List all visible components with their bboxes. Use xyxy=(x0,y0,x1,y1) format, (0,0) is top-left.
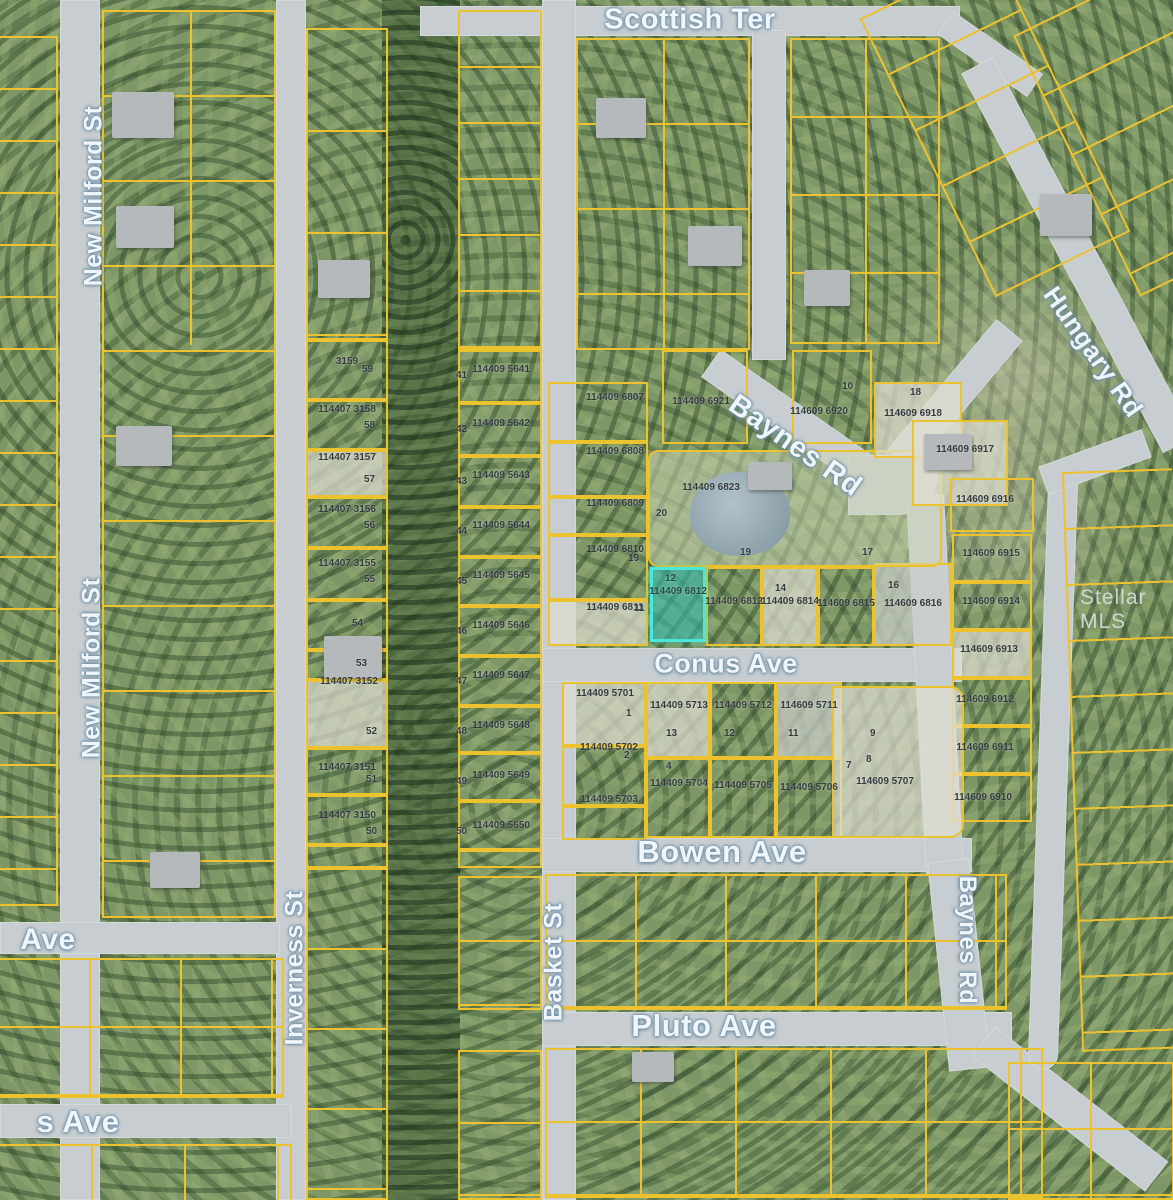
parcel-label: 114409 564242 xyxy=(472,418,530,430)
parcel-label: 114609 6912 xyxy=(956,694,1014,706)
parcel-id: 114609 6816 xyxy=(884,598,942,609)
lot-number: 11 xyxy=(788,728,799,740)
parcel-id: 114409 5701 xyxy=(576,688,634,699)
lot-number: 4 xyxy=(666,761,672,773)
parcel-label: 114409 5705 xyxy=(714,780,772,792)
parcel-id: 114609 6920 xyxy=(790,406,848,417)
lot-number: 45 xyxy=(456,576,467,588)
parcel-id: 114409 5705 xyxy=(714,780,772,791)
parcel-id: 114609 5711 xyxy=(780,700,837,711)
parcel xyxy=(458,507,542,557)
lot-number: 48 xyxy=(456,726,467,738)
lot-number: 1 xyxy=(626,708,632,720)
parcel-label: 114409 6809 xyxy=(586,498,644,510)
parcel-label: 114409 6807 xyxy=(586,392,644,404)
lot-number: 12 xyxy=(724,728,735,740)
parcel xyxy=(458,557,542,606)
parcel-label: 114409 564848 xyxy=(472,720,530,732)
building xyxy=(318,260,370,298)
building xyxy=(116,206,174,248)
parcel-label: 114409 564545 xyxy=(472,570,530,582)
lot-number: 11 xyxy=(634,603,645,615)
parcel-label: 114409 564444 xyxy=(472,520,530,532)
stellar-mls-watermark: Stellar MLS xyxy=(1080,586,1173,634)
parcel-grid xyxy=(545,1048,1043,1198)
parcel-label: 114409 565050 xyxy=(472,820,530,832)
parcel-id: 114409 6921 xyxy=(672,396,730,407)
parcel-id: 114609 6910 xyxy=(954,792,1012,803)
parcel-grid xyxy=(1008,1062,1173,1200)
parcel-label: 315959 xyxy=(318,356,376,368)
lot-number: 58 xyxy=(364,420,375,432)
road-baynes-north xyxy=(752,30,786,360)
parcel xyxy=(306,845,388,868)
parcel-id: 114409 6809 xyxy=(586,498,644,509)
parcel-id: 114407 3151 xyxy=(318,762,376,773)
parcel-id: 114609 6912 xyxy=(956,694,1014,705)
parcel-label: 114609 6910 xyxy=(954,792,1012,804)
parcel-grid xyxy=(545,874,1007,1010)
parcel-label: 114409 57011 xyxy=(576,688,634,700)
street-label-basket-st: Basket St xyxy=(540,903,569,1021)
parcel-id: 114407 3156 xyxy=(318,504,376,515)
parcel-label: 114409 6808 xyxy=(586,446,644,458)
parcel-label: 114609 571111 xyxy=(780,700,838,712)
street-label-new-milford-st-lower: New Milford St xyxy=(78,578,107,759)
lot-number: 56 xyxy=(364,520,375,532)
lot-number: 47 xyxy=(456,676,467,688)
lot-number: 49 xyxy=(456,776,467,788)
parcel-grid xyxy=(0,36,58,906)
parcel xyxy=(458,403,542,456)
aerial-parcel-map: 315959 114407 315858 114407 315757 11440… xyxy=(0,0,1173,1200)
parcel-label: 114609 691818 xyxy=(884,408,942,420)
parcel-id: 114609 6914 xyxy=(962,596,1020,607)
parcel-label: 114407 315757 xyxy=(318,452,376,464)
parcel-id: 114409 5644 xyxy=(472,520,530,531)
lot-number: 19 xyxy=(740,547,751,558)
parcel-label: 114609 6914 xyxy=(962,596,1020,608)
parcel-id: 114609 6911 xyxy=(956,742,1013,753)
building xyxy=(324,636,382,678)
parcel-id: 114409 5647 xyxy=(472,670,530,681)
parcel-id: 114407 3157 xyxy=(318,452,376,463)
parcel-id: 114409 5706 xyxy=(780,782,838,793)
parcel-id: 114409 5704 xyxy=(650,778,708,789)
parcel xyxy=(710,682,776,758)
parcel-label: 114409 5703 xyxy=(580,794,638,806)
parcel-label: 114409 564747 xyxy=(472,670,530,682)
parcel-label: 114409 682320 xyxy=(682,482,740,494)
parcel-grid xyxy=(1062,468,1173,1051)
lot-number: 57 xyxy=(364,474,375,486)
highlighted-parcel-label: 114409 681212 xyxy=(649,586,707,598)
lot-number: 43 xyxy=(456,476,467,488)
building xyxy=(748,462,792,490)
building xyxy=(688,226,742,266)
parcel-label: 114409 564343 xyxy=(472,470,530,482)
parcel-label: 114407 315050 xyxy=(318,810,376,822)
parcel-grid xyxy=(0,1144,292,1200)
building xyxy=(150,852,200,888)
highlighted-parcel xyxy=(650,567,706,642)
parcel-grid xyxy=(0,958,284,1098)
lot-number: 8 xyxy=(866,754,872,765)
lot-number: 44 xyxy=(456,526,467,538)
street-label-bowen-ave: Bowen Ave xyxy=(637,834,806,870)
parcel-label: 114409 564949 xyxy=(472,770,530,782)
street-label-pluto-ave: Pluto Ave xyxy=(631,1008,776,1044)
parcel-id: 114609 6916 xyxy=(956,494,1014,505)
parcel-id: 114609 6913 xyxy=(960,644,1018,655)
street-label-baynes-rd-vertical: Baynes Rd xyxy=(953,876,981,1005)
parcel-grid xyxy=(458,876,542,1010)
parcel-line xyxy=(190,10,192,345)
parcel-id: 114409 5648 xyxy=(472,720,530,731)
parcel-label: 114609 6915 xyxy=(962,548,1020,560)
parcel-id: 3159 xyxy=(336,356,358,367)
building xyxy=(116,426,172,466)
building xyxy=(596,98,646,138)
parcel-id: 114409 5641 xyxy=(472,364,530,375)
parcel-id: 114609 6915 xyxy=(962,548,1020,559)
parcel-id: 114407 3152 xyxy=(320,676,378,687)
parcel-id: 114609 6918 xyxy=(884,408,942,419)
lot-number: 10 xyxy=(842,381,853,392)
parcel-label: 114409 571313 xyxy=(650,700,708,712)
building xyxy=(112,92,174,138)
parcel-label: 114409 6921 xyxy=(672,396,730,408)
lot-number: 18 xyxy=(910,387,921,399)
parcel-id: 114409 6808 xyxy=(586,446,644,457)
parcel-id: 114409 5642 xyxy=(472,418,530,429)
parcel-grid xyxy=(458,1050,542,1200)
lot-number: 16 xyxy=(888,580,899,592)
lot-number: 50 xyxy=(366,826,377,838)
parcel xyxy=(458,350,542,403)
parcel-label: 114409 571212 xyxy=(714,700,772,712)
parcel-id: 114409 5650 xyxy=(472,820,530,831)
parcel-id: 114409 6813 xyxy=(705,596,763,607)
tree-greenbelt xyxy=(382,0,460,1200)
parcel-id: 114409 6814 xyxy=(761,596,819,607)
lot-number: 55 xyxy=(364,574,375,586)
parcel-label: 114609 6815 xyxy=(817,598,875,610)
parcel-label: 114409 564646 xyxy=(472,620,530,632)
lot-number: 13 xyxy=(666,728,677,740)
parcel-label: 114609 6920 xyxy=(790,406,848,418)
parcel-id: 114409 5703 xyxy=(580,794,638,805)
parcel-label: 114409 57022 xyxy=(580,742,638,754)
building xyxy=(632,1052,674,1082)
parcel-id: 114609 6815 xyxy=(817,598,875,609)
parcel-label: 114409 681019 xyxy=(586,544,644,556)
parcel-grid xyxy=(576,38,750,350)
parcel-label: 114409 681111 xyxy=(586,602,644,614)
parcel-label: 114409 681414 xyxy=(761,596,819,608)
street-label-ave-partial: Ave xyxy=(20,923,75,957)
street-label-conus-ave: Conus Ave xyxy=(654,649,798,680)
parcel-id: 114409 5645 xyxy=(472,570,530,581)
parcel-label: 114609 6917 xyxy=(936,444,994,456)
parcel-label: 114409 57044 xyxy=(650,778,708,790)
parcel-id: 114409 6807 xyxy=(586,392,644,403)
lot-number: 20 xyxy=(656,508,667,520)
parcel-id: 114609 5707 xyxy=(856,776,914,787)
parcel-id: 114409 5713 xyxy=(650,700,708,711)
parcel-label: 114609 6916 xyxy=(956,494,1014,506)
parcel-label: 114407 315656 xyxy=(318,504,376,516)
parcel-id: 114409 5649 xyxy=(472,770,530,781)
street-label-scottish-ter: Scottish Ter xyxy=(604,4,775,37)
lot-number: 52 xyxy=(366,726,377,738)
lot-number: 59 xyxy=(362,364,373,376)
lot-number: 53 xyxy=(356,658,367,670)
lot-number: 14 xyxy=(775,583,786,595)
parcel-id: 114409 6823 xyxy=(682,482,740,493)
parcel-label: 114407 315858 xyxy=(318,404,376,416)
parcel-label: 114409 5706 xyxy=(780,782,838,794)
lot-number: 19 xyxy=(628,553,639,565)
parcel-label: 114609 5707 xyxy=(856,776,914,788)
parcel-label: 114609 6913 xyxy=(960,644,1018,656)
parcel-id: 114409 5646 xyxy=(472,620,530,631)
parcel-label: 114407 315555 xyxy=(318,558,376,570)
parcel-label: 114609 6911 xyxy=(956,742,1014,754)
lot-number: 42 xyxy=(456,424,467,436)
parcel xyxy=(306,548,388,600)
parcel xyxy=(306,680,388,748)
parcel-grid xyxy=(306,868,388,1200)
lot-number: 51 xyxy=(366,774,377,786)
lot-number: 7 xyxy=(846,760,852,771)
parcel-id: 114407 3150 xyxy=(318,810,376,821)
parcel-id: 114409 5712 xyxy=(714,700,772,711)
road-pluto-ave xyxy=(542,1012,1012,1046)
parcel-label: 114409 6813 xyxy=(705,596,763,608)
parcel xyxy=(646,758,710,838)
lot-number: 41 xyxy=(456,370,467,382)
building xyxy=(804,270,850,306)
street-label-new-milford-st-upper: New Milford St xyxy=(80,106,109,287)
parcel xyxy=(458,456,542,507)
lot-number: 2 xyxy=(624,750,630,762)
parcel xyxy=(458,850,542,868)
parcel-id: 114409 6812 xyxy=(649,586,707,597)
parcel-label: 114407 315151 xyxy=(318,762,376,774)
parcel xyxy=(562,806,646,840)
parcel xyxy=(306,340,388,400)
parcel-grid xyxy=(458,10,542,350)
parcel-id: 114409 5643 xyxy=(472,470,530,481)
lot-number: 50 xyxy=(456,826,467,838)
parcel-id: 114609 6917 xyxy=(936,444,994,455)
parcel xyxy=(710,758,776,838)
parcel-label: 114409 564141 xyxy=(472,364,530,376)
lot-number: 54 xyxy=(352,618,363,630)
parcel-id: 114407 3155 xyxy=(318,558,376,569)
street-label-inverness-st: Inverness St xyxy=(281,891,310,1046)
building xyxy=(1040,194,1092,236)
parcel xyxy=(646,682,710,758)
lot-number: 9 xyxy=(870,728,876,739)
parcel-id: 114407 3158 xyxy=(318,404,376,415)
street-label-s-ave-partial: s Ave xyxy=(37,1104,120,1140)
parcel-label: 114407 315252 xyxy=(320,676,378,688)
parcel-label: 114609 681616 xyxy=(884,598,942,610)
parcel xyxy=(548,382,648,442)
lot-number: 12 xyxy=(665,573,676,585)
parcel xyxy=(792,350,872,444)
lot-number: 46 xyxy=(456,626,467,638)
lot-number: 17 xyxy=(862,547,873,558)
